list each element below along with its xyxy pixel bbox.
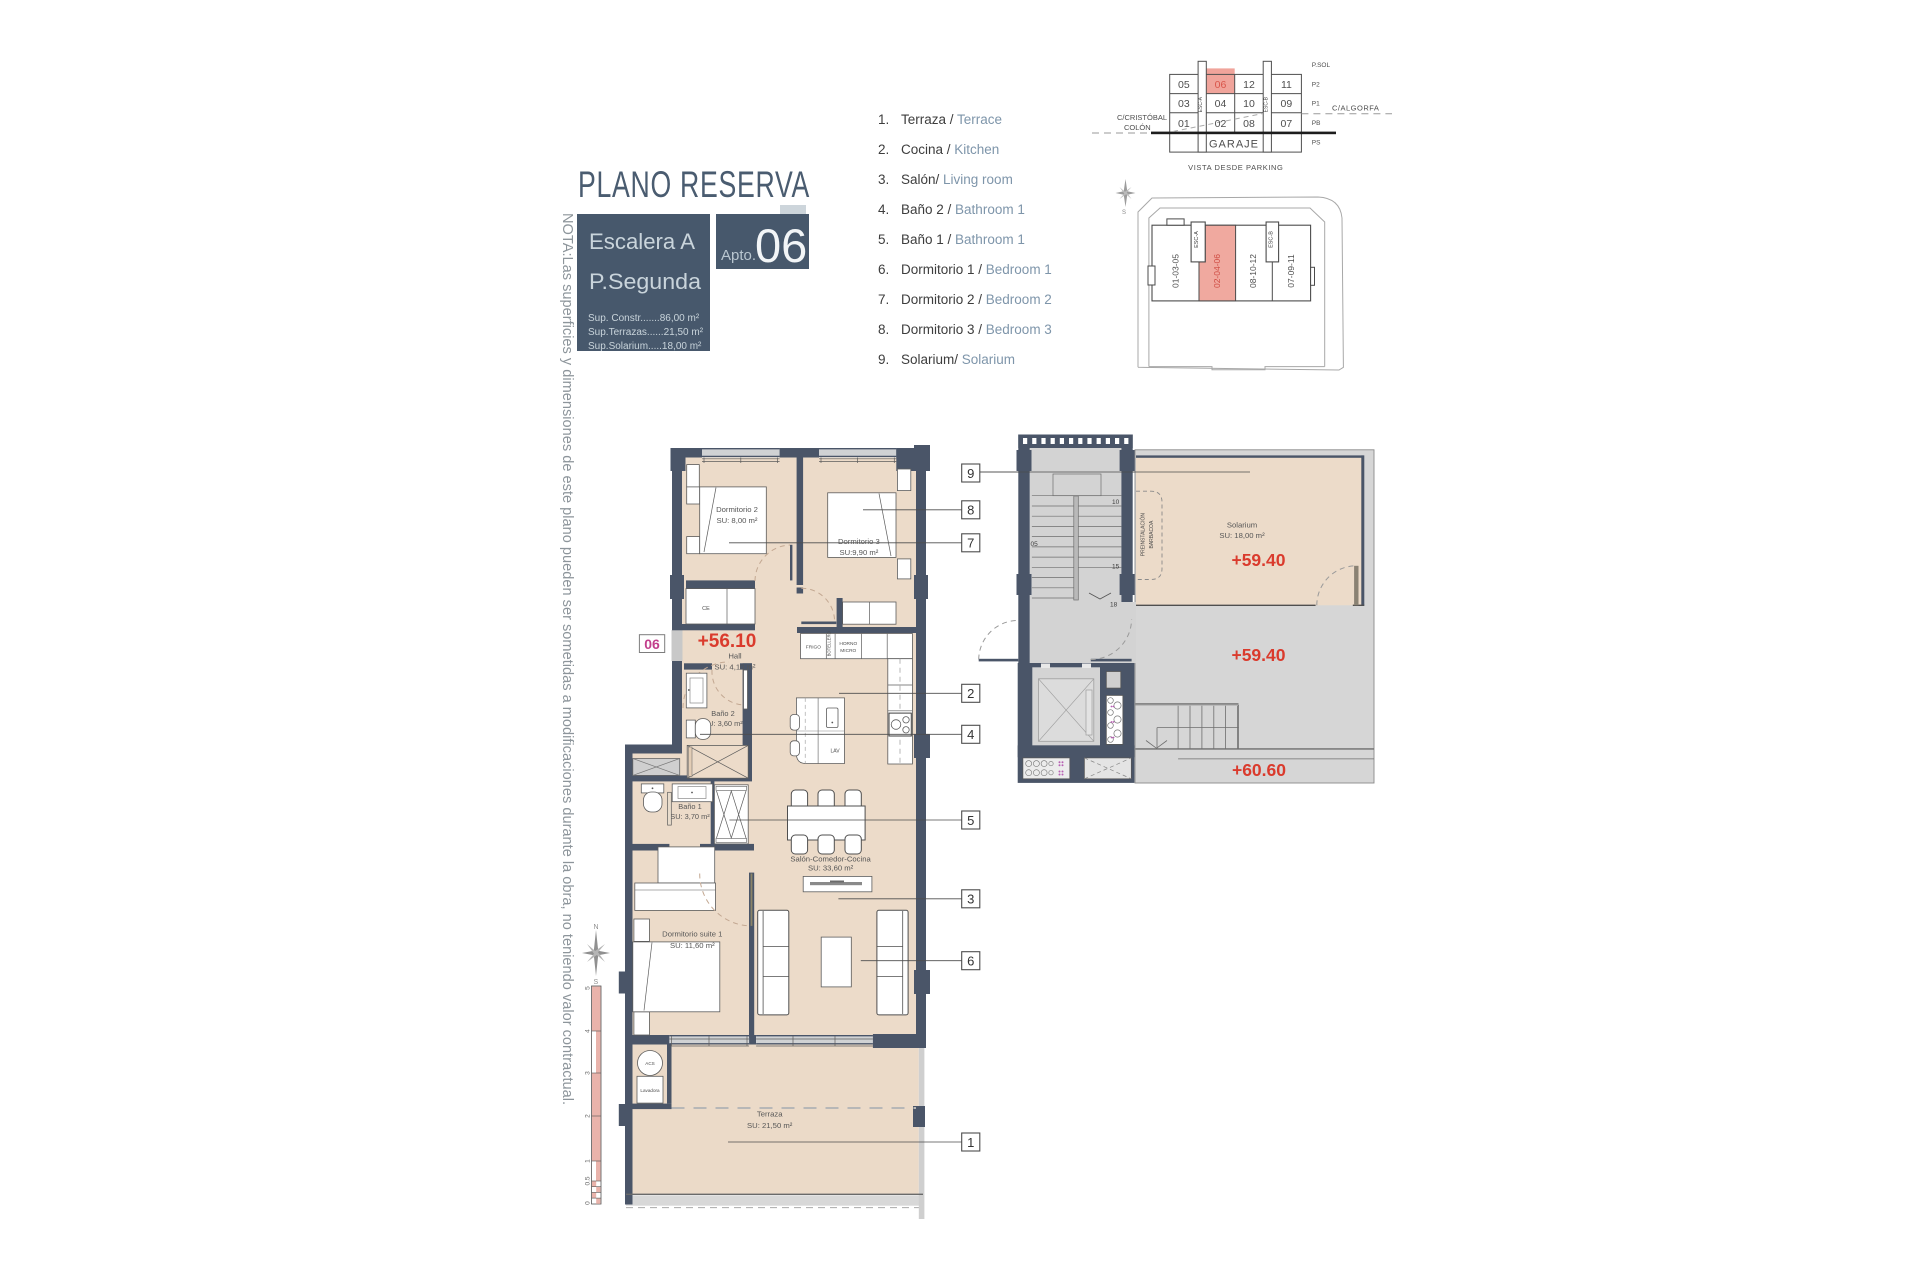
svg-text:GARAJE: GARAJE [1209,139,1259,151]
svg-text:Solarium/ Solarium: Solarium/ Solarium [901,352,1015,367]
svg-text:C/CRISTÓBAL: C/CRISTÓBAL [1117,113,1167,122]
svg-text:PB: PB [1312,120,1321,127]
svg-text:5.: 5. [878,232,889,247]
svg-text:6.: 6. [878,262,889,277]
svg-text:Baño 2: Baño 2 [711,709,734,718]
svg-text:03: 03 [1178,98,1190,110]
svg-text:10: 10 [1112,499,1120,506]
svg-text:ESC-B: ESC-B [1263,96,1269,112]
svg-text:BOTELLERO: BOTELLERO [827,630,832,656]
svg-text:1: 1 [967,1135,974,1150]
svg-text:01-03-05: 01-03-05 [1171,254,1181,288]
svg-text:+59.40: +59.40 [1231,550,1285,570]
svg-text:5: 5 [585,986,592,990]
svg-text:S: S [1122,210,1126,216]
svg-text:P1: P1 [1312,101,1320,108]
svg-text:Solarium: Solarium [1227,521,1257,530]
svg-text:Hall: Hall [728,652,742,661]
svg-text:SU: 33,60 m²: SU: 33,60 m² [808,864,854,873]
svg-text:P.Segunda: P.Segunda [589,269,702,294]
svg-text:SU: 4,10 m²: SU: 4,10 m² [714,663,755,672]
svg-text:1.: 1. [878,112,889,127]
svg-text:FRIGO: FRIGO [806,645,821,651]
svg-text:Sup.Solarium.....18,00 m²: Sup.Solarium.....18,00 m² [588,341,702,352]
svg-text:Dormitorio 3 / Bedroom 3: Dormitorio 3 / Bedroom 3 [901,322,1052,337]
svg-text:Cocina / Kitchen: Cocina / Kitchen [901,142,999,157]
svg-text:11: 11 [1281,79,1292,91]
svg-text:18: 18 [1110,602,1118,609]
svg-text:P2: P2 [1312,82,1320,89]
svg-text:06: 06 [755,219,807,272]
svg-text:Terraza: Terraza [757,1110,783,1119]
svg-text:0.5: 0.5 [585,1176,592,1185]
svg-text:SU: 18,00 m²: SU: 18,00 m² [1219,531,1265,540]
svg-text:SU: 3,70 m²: SU: 3,70 m² [670,812,710,821]
svg-text:05: 05 [1178,79,1190,91]
svg-text:SU:9,90 m²: SU:9,90 m² [839,548,878,557]
svg-text:4.: 4. [878,202,889,217]
svg-text:Baño 1 / Bathroom 1: Baño 1 / Bathroom 1 [901,232,1025,247]
svg-text:12: 12 [1243,79,1255,91]
svg-text:4: 4 [585,1029,592,1033]
svg-text:07-09-11: 07-09-11 [1286,254,1296,288]
svg-text:Salón-Comedor-Cocina: Salón-Comedor-Cocina [790,855,871,864]
svg-text:06: 06 [644,636,660,652]
svg-text:N: N [594,924,599,931]
svg-text:04: 04 [1215,98,1227,110]
svg-text:9.: 9. [878,352,889,367]
svg-text:2: 2 [585,1114,592,1118]
svg-text:8.: 8. [878,322,889,337]
svg-text:6: 6 [967,954,974,969]
svg-text:05: 05 [1031,541,1039,548]
svg-text:06: 06 [1215,79,1227,91]
svg-text:Dormitorio 3: Dormitorio 3 [838,537,880,546]
svg-text:7.: 7. [878,292,889,307]
svg-text:3: 3 [585,1071,592,1075]
svg-text:2: 2 [967,686,974,701]
svg-text:8: 8 [967,503,974,518]
svg-text:VISTA DESDE PARKING: VISTA DESDE PARKING [1188,163,1283,172]
svg-text:5: 5 [967,813,974,828]
svg-text:SU: 21,50 m²: SU: 21,50 m² [747,1121,793,1130]
svg-text:S: S [594,979,599,986]
svg-text:07: 07 [1281,118,1293,130]
svg-text:C/ALGORFA: C/ALGORFA [1332,104,1379,113]
svg-text:HORNO: HORNO [839,641,857,647]
svg-text:ESC-A: ESC-A [1198,96,1204,112]
svg-text:+60.60: +60.60 [1232,760,1286,780]
svg-text:09: 09 [1281,98,1293,110]
svg-text:+59.40: +59.40 [1231,645,1285,665]
svg-text:08: 08 [1243,118,1255,130]
svg-text:SU: 8,00 m²: SU: 8,00 m² [716,516,757,525]
svg-text:1: 1 [585,1159,592,1163]
svg-text:0: 0 [585,1201,592,1205]
svg-text:P.SOL: P.SOL [1312,62,1331,69]
svg-text:Baño 2 / Bathroom 1: Baño 2 / Bathroom 1 [901,202,1025,217]
svg-text:Dormitorio 2 / Bedroom 2: Dormitorio 2 / Bedroom 2 [901,292,1052,307]
svg-text:PLANO RESERVA: PLANO RESERVA [578,164,810,205]
svg-text:Lavadora: Lavadora [640,1088,660,1093]
svg-text:ESC-B: ESC-B [1268,231,1274,248]
svg-text:CE: CE [702,606,710,612]
svg-text:4: 4 [967,727,974,742]
svg-text:9: 9 [967,466,974,481]
svg-text:02: 02 [1215,118,1227,130]
svg-text:BARBACOA: BARBACOA [1149,520,1155,548]
svg-text:15: 15 [1112,564,1120,571]
svg-text:Dormitorio suite 1: Dormitorio suite 1 [662,930,722,939]
svg-text:NOTA:Las superficies y dimensi: NOTA:Las superficies y dimensiones de es… [559,213,575,1105]
svg-text:Sup. Constr.......86,00 m²: Sup. Constr.......86,00 m² [588,313,700,324]
svg-text:Terraza / Terrace: Terraza / Terrace [901,112,1002,127]
svg-text:Escalera A: Escalera A [589,229,695,254]
svg-text:Dormitorio 1 / Bedroom 1: Dormitorio 1 / Bedroom 1 [901,262,1052,277]
svg-text:MICRO: MICRO [840,648,856,654]
svg-text:PREINSTALACIÓN: PREINSTALACIÓN [1139,513,1146,557]
svg-text:COLÓN: COLÓN [1124,123,1151,132]
svg-text:10: 10 [1243,98,1255,110]
svg-text:PS: PS [1312,140,1321,147]
svg-text:Dormitorio 2: Dormitorio 2 [716,505,758,514]
svg-text:01: 01 [1178,118,1190,130]
svg-text:02-04-06: 02-04-06 [1212,254,1222,288]
svg-text:3.: 3. [878,172,889,187]
svg-text:ACS: ACS [645,1061,654,1066]
svg-text:Baño 1: Baño 1 [678,802,701,811]
svg-text:+56.10: +56.10 [698,631,757,652]
svg-text:ESC-A: ESC-A [1194,231,1200,248]
svg-text:LAV: LAV [830,749,840,755]
svg-text:SU: 11,60 m²: SU: 11,60 m² [670,941,715,950]
svg-text:Sup.Terrazas......21,50 m²: Sup.Terrazas......21,50 m² [588,327,704,338]
svg-text:Salón/ Living room: Salón/ Living room [901,172,1013,187]
svg-text:3: 3 [967,892,974,907]
svg-text:08-10-12: 08-10-12 [1248,254,1258,288]
svg-text:7: 7 [967,536,974,551]
svg-text:2.: 2. [878,142,889,157]
svg-text:Apto.: Apto. [721,247,756,264]
